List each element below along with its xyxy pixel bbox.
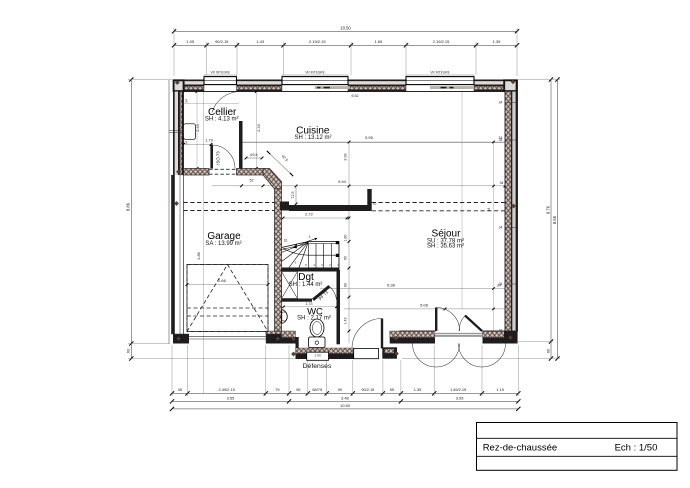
svg-text:2.72: 2.72 bbox=[305, 212, 314, 217]
svg-text:Défenses: Défenses bbox=[303, 363, 332, 370]
svg-text:6.38: 6.38 bbox=[387, 282, 396, 287]
svg-text:8.65: 8.65 bbox=[552, 215, 557, 224]
svg-text:34: 34 bbox=[499, 138, 503, 142]
svg-text:16: 16 bbox=[284, 238, 288, 242]
svg-text:34: 34 bbox=[499, 329, 503, 333]
svg-text:9.52: 9.52 bbox=[351, 94, 358, 98]
svg-text:1.43: 1.43 bbox=[344, 318, 348, 325]
svg-text:1.19: 1.19 bbox=[496, 387, 504, 392]
svg-text:3.55: 3.55 bbox=[227, 395, 236, 400]
svg-text:SH : 2.17 m²: SH : 2.17 m² bbox=[297, 316, 331, 322]
svg-text:34: 34 bbox=[185, 99, 189, 103]
svg-text:4.86: 4.86 bbox=[197, 252, 201, 259]
svg-text:2.19/2.15: 2.19/2.15 bbox=[309, 39, 326, 44]
svg-text:SA : 13.99 m²: SA : 13.99 m² bbox=[205, 241, 241, 247]
svg-text:9.76: 9.76 bbox=[545, 205, 550, 214]
svg-text:VR INTEGRE: VR INTEGRE bbox=[305, 71, 324, 75]
svg-text:1.79: 1.79 bbox=[205, 138, 212, 142]
svg-text:10.50: 10.50 bbox=[340, 403, 351, 408]
svg-text:1.80: 1.80 bbox=[344, 235, 348, 242]
svg-text:3.93: 3.93 bbox=[343, 153, 347, 160]
svg-text:2.49/2.15: 2.49/2.15 bbox=[219, 387, 235, 392]
svg-text:55: 55 bbox=[390, 387, 394, 392]
svg-text:52: 52 bbox=[249, 179, 253, 183]
svg-text:1.43: 1.43 bbox=[314, 353, 320, 357]
svg-text:1.39: 1.39 bbox=[493, 39, 502, 44]
svg-text:34: 34 bbox=[500, 181, 504, 185]
svg-text:2.43: 2.43 bbox=[257, 124, 261, 131]
svg-text:Rez-de-chaussée: Rez-de-chaussée bbox=[483, 443, 557, 454]
svg-text:60: 60 bbox=[546, 349, 550, 353]
svg-text:VR INTEGRE: VR INTEGRE bbox=[211, 71, 230, 75]
svg-text:10.50: 10.50 bbox=[340, 25, 351, 30]
svg-text:1.73: 1.73 bbox=[306, 302, 313, 306]
svg-text:90/2.15: 90/2.15 bbox=[215, 39, 229, 44]
svg-text:ISO 73: ISO 73 bbox=[216, 151, 221, 165]
svg-text:72.5: 72.5 bbox=[291, 191, 295, 198]
svg-text:SH : 4.13 m²: SH : 4.13 m² bbox=[205, 117, 239, 123]
svg-text:63.5: 63.5 bbox=[250, 153, 257, 157]
svg-text:1.35: 1.35 bbox=[414, 387, 422, 392]
svg-text:34: 34 bbox=[499, 282, 503, 286]
svg-text:SH : 13.12 m²: SH : 13.12 m² bbox=[294, 135, 331, 141]
svg-text:90/2.15: 90/2.15 bbox=[361, 387, 374, 392]
svg-text:VR INTEGRE: VR INTEGRE bbox=[430, 71, 449, 75]
svg-text:16: 16 bbox=[373, 201, 377, 205]
svg-text:2.19/2.15: 2.19/2.15 bbox=[433, 39, 450, 44]
svg-text:9.94: 9.94 bbox=[338, 179, 347, 184]
svg-text:34: 34 bbox=[499, 101, 503, 105]
svg-text:5.08: 5.08 bbox=[420, 303, 429, 308]
svg-text:2.43: 2.43 bbox=[196, 124, 200, 131]
svg-text:5.95: 5.95 bbox=[365, 135, 374, 140]
svg-text:80: 80 bbox=[344, 283, 348, 287]
svg-text:34: 34 bbox=[499, 226, 503, 230]
svg-text:SH : 35.63 m²: SH : 35.63 m² bbox=[427, 244, 464, 250]
svg-text:1.49/2.15: 1.49/2.15 bbox=[450, 387, 466, 392]
svg-text:Ech : 1/50: Ech : 1/50 bbox=[615, 443, 658, 454]
svg-text:2: 2 bbox=[309, 235, 311, 239]
svg-text:8.86: 8.86 bbox=[126, 202, 131, 211]
svg-text:60: 60 bbox=[127, 349, 131, 353]
svg-text:45: 45 bbox=[178, 387, 182, 392]
svg-text:SH : 1.44 m²: SH : 1.44 m² bbox=[289, 282, 323, 288]
svg-text:1.05: 1.05 bbox=[186, 39, 195, 44]
svg-text:14: 14 bbox=[185, 141, 189, 145]
svg-text:55: 55 bbox=[296, 387, 300, 392]
svg-text:79: 79 bbox=[275, 387, 279, 392]
svg-text:1.65: 1.65 bbox=[375, 39, 384, 44]
svg-text:3.95: 3.95 bbox=[456, 395, 465, 400]
svg-text:2.66: 2.66 bbox=[218, 278, 227, 283]
svg-text:3.48: 3.48 bbox=[341, 395, 350, 400]
svg-text:68/75: 68/75 bbox=[312, 387, 322, 392]
svg-text:1.43: 1.43 bbox=[256, 39, 265, 44]
svg-text:50: 50 bbox=[344, 256, 348, 260]
